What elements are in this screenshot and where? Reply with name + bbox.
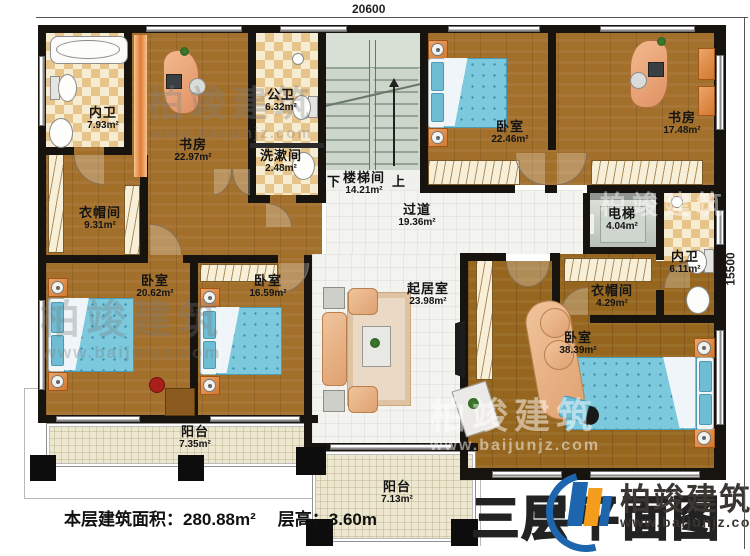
stair-arrow-head (389, 78, 399, 87)
room-label-cloakroom-right: 衣帽间4.29m² (591, 284, 633, 309)
window (210, 416, 300, 422)
window (146, 26, 242, 32)
window (716, 330, 724, 425)
room-label-washroom: 洗漱间2.48m² (260, 149, 302, 174)
dimension-right-label: 15500 (724, 252, 738, 285)
window (716, 55, 724, 130)
sink (49, 118, 73, 148)
floor-area-text: 本层建筑面积：280.88m² (64, 510, 256, 529)
wall (583, 193, 590, 254)
room-label-cloakroom-left: 衣帽间9.31m² (79, 206, 121, 231)
closet-master-wardrobe (476, 258, 493, 380)
logo-brand-text: 柏竣建筑 (620, 474, 750, 519)
wall (587, 185, 726, 193)
wall (248, 195, 270, 203)
elevator-door (590, 214, 594, 234)
column (178, 455, 204, 481)
dimension-line-top (36, 17, 748, 18)
room-label-bedroom-top: 卧室22.46m² (491, 120, 528, 145)
room-label-public-bath: 公卫6.32m² (265, 88, 297, 113)
wall (38, 147, 74, 155)
room-label-master-bedroom: 卧室38.39m² (559, 331, 596, 356)
faucet (292, 53, 304, 65)
closet-cloakroom-left-b (124, 185, 140, 255)
room-label-stairwell: 楼梯间14.21m² (343, 171, 385, 196)
stair-flight-left (326, 67, 370, 171)
window (39, 300, 45, 390)
window (600, 26, 695, 32)
wall (104, 147, 132, 155)
wall (460, 253, 506, 261)
wall (318, 25, 326, 203)
radiator-strip (134, 35, 147, 177)
wall (656, 290, 664, 315)
stair-up-label: 上 (392, 171, 405, 190)
room-label-elevator: 电梯4.04m² (606, 207, 638, 232)
faucet (671, 196, 683, 208)
closet-bedroom-top (428, 160, 520, 185)
floor-hallway (326, 190, 583, 254)
room-label-hallway: 过道19.36m² (398, 203, 435, 228)
floor-plan: 20600 15500 (0, 0, 750, 556)
room-label-study-right: 书房17.48m² (663, 111, 700, 136)
room-label-balcony-center: 阳台7.13m² (381, 480, 413, 505)
wall (420, 25, 428, 193)
room-label-bath-top-left: 内卫7.93m² (87, 106, 119, 131)
dimension-top-label: 20600 (352, 2, 385, 16)
window (39, 56, 45, 126)
wall (428, 185, 515, 193)
wall (545, 185, 557, 193)
wall (38, 255, 148, 263)
wall (548, 25, 556, 150)
closet-cloakroom-right (564, 258, 652, 282)
room-label-living-room: 起居室23.98m² (407, 282, 449, 307)
window (716, 210, 724, 245)
wall (304, 255, 312, 451)
room-label-bedroom-left: 卧室20.62m² (136, 274, 173, 299)
stair-direction-arrow (393, 86, 395, 166)
window (56, 416, 140, 422)
closet-cloakroom-left-a (48, 150, 64, 253)
dimension-line-right (744, 17, 745, 549)
company-logo: 柏竣建筑 www.baijunjz.com (544, 466, 750, 552)
tv-living-room (455, 320, 465, 378)
window (448, 26, 540, 32)
room-label-bedroom-mid: 卧室16.59m² (249, 274, 286, 299)
logo-website-text: www.baijunjz.com (620, 514, 750, 530)
wall (183, 255, 278, 263)
wall (590, 315, 726, 323)
window (280, 26, 347, 32)
window (330, 444, 452, 450)
wall (583, 247, 664, 254)
room-label-bath-right: 内卫6.11m² (669, 250, 700, 275)
room-label-study-left: 书房22.97m² (174, 138, 211, 163)
column (30, 455, 56, 481)
stair-rail (369, 40, 376, 172)
room-label-balcony-left: 阳台7.35m² (179, 425, 211, 450)
closet-study-right (591, 160, 703, 185)
floor-height-text: 层高：3.60m (278, 510, 377, 529)
sink (686, 286, 710, 314)
bathtub-basin (56, 40, 120, 59)
stair-down-label: 下 (327, 171, 340, 190)
footer-stats: 本层建筑面积：280.88m²层高：3.60m (64, 505, 399, 530)
column (296, 447, 326, 475)
